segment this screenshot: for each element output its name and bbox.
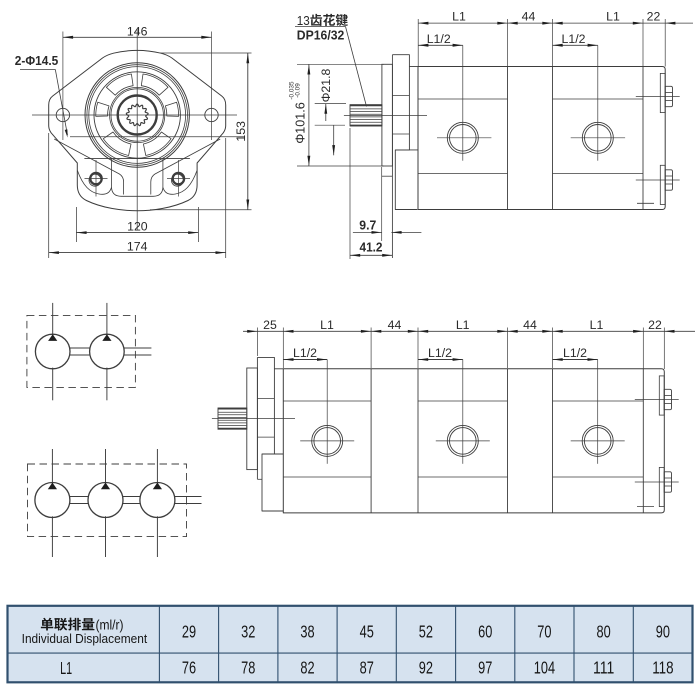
svg-text:44: 44 [523, 318, 537, 332]
svg-text:L1/2: L1/2 [427, 32, 451, 46]
svg-text:82: 82 [300, 658, 314, 678]
svg-text:22: 22 [648, 318, 662, 332]
svg-text:76: 76 [182, 658, 196, 678]
svg-text:97: 97 [478, 658, 492, 678]
svg-text:78: 78 [241, 658, 255, 678]
svg-text:44: 44 [522, 10, 536, 24]
svg-text:41.2: 41.2 [360, 240, 383, 254]
svg-text:Φ21.8: Φ21.8 [319, 68, 333, 102]
svg-text:38: 38 [300, 621, 314, 641]
svg-text:Φ101.6: Φ101.6 [293, 102, 307, 144]
svg-text:60: 60 [478, 621, 492, 641]
svg-text:118: 118 [652, 658, 673, 678]
svg-text:29: 29 [182, 621, 196, 641]
svg-text:L1/2: L1/2 [428, 346, 452, 360]
svg-text:9.7: 9.7 [359, 219, 376, 233]
svg-text:L1/2: L1/2 [562, 32, 586, 46]
svg-text:90: 90 [656, 621, 670, 641]
svg-text:L1: L1 [320, 318, 334, 332]
svg-text:L1/2: L1/2 [293, 346, 317, 360]
svg-text:80: 80 [597, 621, 611, 641]
svg-text:L1: L1 [606, 10, 620, 24]
svg-text:87: 87 [360, 658, 374, 678]
svg-text:104: 104 [534, 658, 556, 678]
svg-text:45: 45 [360, 621, 374, 641]
svg-text:L1: L1 [452, 10, 466, 24]
svg-text:Individual Displacement: Individual Displacement [22, 632, 148, 646]
svg-text:44: 44 [388, 318, 402, 332]
svg-text:22: 22 [647, 10, 661, 24]
svg-text:120: 120 [127, 219, 148, 233]
svg-text:L1: L1 [590, 318, 604, 332]
svg-text:146: 146 [127, 24, 148, 38]
svg-text:-0.035-0.09: -0.035-0.09 [288, 81, 301, 100]
svg-text:L1: L1 [456, 318, 470, 332]
svg-text:(ml/r): (ml/r) [96, 617, 124, 632]
svg-text:DP16/32: DP16/32 [297, 28, 345, 43]
svg-text:13: 13 [297, 13, 310, 28]
svg-text:25: 25 [263, 318, 277, 332]
svg-text:174: 174 [127, 239, 148, 253]
svg-text:32: 32 [241, 621, 255, 641]
svg-text:70: 70 [537, 621, 551, 641]
svg-text:L1/2: L1/2 [563, 346, 587, 360]
svg-text:92: 92 [419, 658, 433, 678]
svg-text:2-Φ14.5: 2-Φ14.5 [15, 53, 59, 68]
svg-text:L1: L1 [60, 658, 72, 678]
svg-text:153: 153 [234, 121, 248, 142]
svg-text:52: 52 [419, 621, 433, 641]
svg-text:111: 111 [593, 658, 614, 678]
